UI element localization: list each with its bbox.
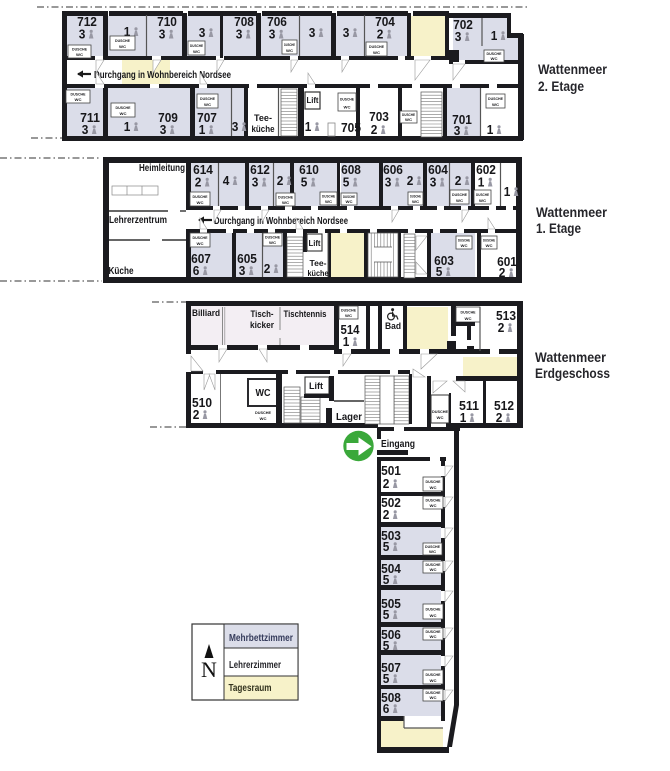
svg-text:Durchgang in Wohnbereich Nords: Durchgang in Wohnbereich Nordsee [214,215,348,227]
svg-text:WC: WC [75,98,83,102]
svg-text:Lift: Lift [307,96,319,105]
svg-text:WC: WC [346,200,354,204]
svg-text:DUSCHE: DUSCHE [284,43,296,47]
svg-text:WC: WC [345,314,353,318]
svg-text:WC: WC [430,568,438,572]
svg-text:703: 703 [369,110,389,124]
svg-text:DUSCHE: DUSCHE [341,308,357,312]
svg-text:2: 2 [371,123,378,137]
svg-text:DUSCHE: DUSCHE [255,411,271,415]
svg-text:Heimleitung: Heimleitung [139,163,185,174]
svg-text:2: 2 [383,477,390,491]
svg-text:DUSCHE: DUSCHE [116,106,132,110]
svg-text:WC: WC [197,201,205,205]
svg-text:WC: WC [430,504,438,508]
svg-text:DUSCHE: DUSCHE [426,607,442,611]
svg-text:2: 2 [498,321,505,335]
svg-text:Wattenmeer: Wattenmeer [535,350,607,365]
svg-text:3: 3 [160,123,167,137]
svg-text:Lift: Lift [309,239,321,248]
svg-text:WC: WC [269,241,277,245]
svg-text:Durchgang in Wohnbereich Nords: Durchgang in Wohnbereich Nordsee [94,69,231,81]
svg-text:WC: WC [412,200,420,204]
svg-text:1: 1 [305,120,312,134]
svg-text:N: N [201,657,217,682]
svg-text:DUSCHE: DUSCHE [402,113,416,117]
svg-text:3: 3 [159,28,166,42]
svg-text:WC: WC [256,388,271,399]
svg-text:Erdgeschoss: Erdgeschoss [535,366,610,381]
svg-text:3: 3 [82,123,89,137]
svg-text:2: 2 [383,508,390,522]
svg-text:5: 5 [383,540,390,554]
svg-text:Wattenmeer: Wattenmeer [536,205,608,220]
svg-text:küche: küche [252,124,275,134]
svg-text:5: 5 [383,672,390,686]
svg-text:3: 3 [252,176,259,190]
svg-text:1. Etage: 1. Etage [536,221,581,236]
svg-text:DUSCHE: DUSCHE [461,309,476,314]
svg-text:2: 2 [277,174,284,188]
svg-text:WC: WC [260,417,267,421]
svg-text:5: 5 [436,265,443,279]
svg-text:WC: WC [430,679,438,683]
svg-text:Eingang: Eingang [381,439,415,450]
svg-text:1: 1 [478,176,485,190]
svg-text:3: 3 [236,28,243,42]
svg-text:6: 6 [383,702,390,716]
svg-text:WC: WC [405,118,413,122]
svg-text:Lehrerzimmer: Lehrerzimmer [229,660,281,671]
svg-text:DUSCHE: DUSCHE [487,52,503,56]
svg-text:1: 1 [487,123,494,137]
svg-text:WC: WC [197,242,205,246]
svg-text:DUSCHE: DUSCHE [265,235,281,239]
svg-text:6: 6 [193,264,200,278]
svg-text:DUSCHE: DUSCHE [343,195,356,199]
svg-text:DUSCHE: DUSCHE [425,545,441,549]
svg-text:3: 3 [343,26,350,40]
svg-text:5: 5 [383,573,390,587]
svg-text:WC: WC [456,199,464,203]
svg-text:WC: WC [119,45,127,49]
svg-text:Bad: Bad [385,321,401,332]
svg-text:DUSCHE: DUSCHE [426,630,442,634]
svg-text:5: 5 [383,639,390,653]
svg-text:DUSCHE: DUSCHE [426,563,442,567]
svg-text:DUSCHE: DUSCHE [115,39,131,43]
svg-text:WC: WC [76,53,84,57]
svg-text:1: 1 [491,29,498,43]
svg-text:WC: WC [193,50,201,54]
svg-text:5: 5 [383,608,390,622]
svg-text:5: 5 [301,176,308,190]
svg-text:WC: WC [430,486,438,490]
svg-text:WC: WC [430,614,438,618]
svg-text:Billiard: Billiard [192,308,220,319]
svg-text:3: 3 [232,120,239,134]
svg-text:3: 3 [269,28,276,42]
svg-text:DUSCHE: DUSCHE [426,480,442,484]
svg-text:3: 3 [199,26,206,40]
svg-text:2: 2 [264,262,271,276]
svg-text:DUSCHE: DUSCHE [193,195,209,199]
svg-text:kicker: kicker [250,320,274,331]
svg-text:WC: WC [282,201,290,205]
svg-text:501: 501 [381,464,401,478]
svg-text:küche: küche [308,268,329,278]
svg-text:3: 3 [79,28,86,42]
svg-text:1: 1 [460,411,467,425]
svg-text:705: 705 [341,121,361,135]
svg-text:1: 1 [124,120,131,134]
svg-text:WC: WC [461,244,469,248]
svg-text:Wattenmeer: Wattenmeer [538,62,608,77]
svg-text:WC: WC [430,696,438,700]
svg-text:WC: WC [204,103,212,107]
svg-text:Tagesraum: Tagesraum [229,683,272,694]
svg-text:DUSCHE: DUSCHE [426,673,442,677]
svg-text:Lift: Lift [309,381,323,391]
svg-text:2: 2 [496,411,503,425]
svg-text:3: 3 [239,264,246,278]
svg-text:Tischtennis: Tischtennis [284,309,327,320]
svg-text:2: 2 [195,176,202,190]
svg-text:DUSCHE: DUSCHE [452,193,468,197]
svg-text:1: 1 [199,123,206,137]
svg-text:Tee-: Tee- [310,258,327,268]
svg-text:1: 1 [343,335,350,349]
svg-text:Lehrerzentrum: Lehrerzentrum [109,215,167,226]
svg-text:DUSCHE: DUSCHE [432,410,448,414]
svg-text:5: 5 [343,176,350,190]
svg-text:DUSCHE: DUSCHE [340,98,355,102]
svg-text:3: 3 [430,176,437,190]
svg-text:WC: WC [465,316,472,321]
svg-text:2: 2 [499,266,506,280]
svg-text:DUSCHE: DUSCHE [72,47,88,51]
svg-text:DUSCHE: DUSCHE [426,498,442,502]
svg-text:DUSCHE: DUSCHE [483,238,496,242]
svg-text:4: 4 [223,174,230,188]
svg-text:DUSCHE: DUSCHE [458,238,471,242]
svg-text:WC: WC [429,550,437,554]
svg-text:WC: WC [344,105,352,109]
svg-text:2: 2 [407,174,414,188]
svg-text:Tee-: Tee- [254,113,272,123]
svg-text:2: 2 [193,408,200,422]
svg-text:Tisch-: Tisch- [251,309,274,320]
svg-text:WC: WC [325,200,333,204]
svg-text:1: 1 [504,185,511,199]
svg-text:WC: WC [437,416,444,420]
svg-text:DUSCHE: DUSCHE [410,194,422,198]
svg-text:2: 2 [455,174,462,188]
svg-text:WC: WC [430,635,438,639]
svg-text:3: 3 [455,30,462,44]
svg-text:Lager: Lager [336,411,362,423]
svg-text:WC: WC [492,103,500,107]
svg-text:Küche: Küche [109,266,134,277]
svg-text:DUSCHE: DUSCHE [426,691,442,695]
svg-text:WC: WC [491,57,499,61]
svg-text:WC: WC [373,51,381,55]
svg-text:3: 3 [309,26,316,40]
svg-text:DUSCHE: DUSCHE [193,236,209,240]
svg-text:WC: WC [479,199,487,203]
svg-text:DUSCHE: DUSCHE [278,195,294,199]
svg-text:DUSCHE: DUSCHE [488,97,504,101]
svg-text:WC: WC [120,112,128,116]
svg-text:2: 2 [377,28,384,42]
svg-text:DUSCHE: DUSCHE [190,44,204,48]
svg-text:3: 3 [385,176,392,190]
svg-text:DUSCHE: DUSCHE [71,92,87,96]
svg-text:DUSCHE: DUSCHE [200,97,216,101]
svg-text:WC: WC [486,244,494,248]
svg-text:Mehrbettzimmer: Mehrbettzimmer [229,633,293,644]
svg-text:3: 3 [454,124,461,138]
svg-text:WC: WC [286,49,294,53]
svg-text:DUSCHE: DUSCHE [322,194,336,198]
svg-text:DUSCHE: DUSCHE [476,193,490,197]
svg-text:2. Etage: 2. Etage [538,79,584,94]
svg-text:DUSCHE: DUSCHE [369,45,385,49]
